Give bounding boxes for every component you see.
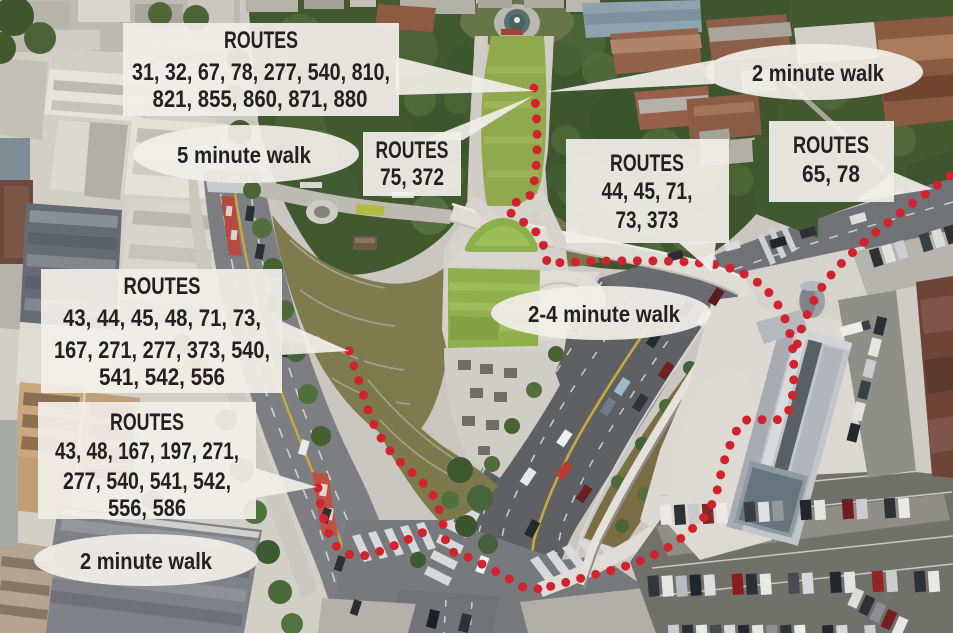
svg-text:73, 373: 73, 373	[616, 207, 679, 234]
svg-text:2-4 minute walk: 2-4 minute walk	[528, 301, 680, 327]
svg-text:ROUTES: ROUTES	[793, 132, 869, 159]
svg-text:556, 586: 556, 586	[108, 495, 186, 522]
svg-text:ROUTES: ROUTES	[376, 137, 449, 164]
svg-text:43, 48, 167, 197, 271,: 43, 48, 167, 197, 271,	[55, 438, 239, 465]
svg-text:ROUTES: ROUTES	[124, 273, 201, 300]
svg-text:ROUTES: ROUTES	[224, 27, 298, 54]
svg-text:2 minute walk: 2 minute walk	[752, 60, 884, 86]
svg-text:277, 540, 541, 542,: 277, 540, 541, 542,	[63, 468, 231, 495]
svg-text:167, 271, 277, 373, 540,: 167, 271, 277, 373, 540,	[54, 337, 270, 364]
svg-text:65, 78: 65, 78	[802, 161, 860, 188]
svg-text:ROUTES: ROUTES	[610, 150, 684, 177]
svg-text:2 minute walk: 2 minute walk	[80, 548, 212, 574]
svg-text:43, 44, 45, 48, 71, 73,: 43, 44, 45, 48, 71, 73,	[63, 305, 261, 332]
svg-text:5 minute walk: 5 minute walk	[177, 142, 311, 168]
svg-text:821, 855, 860, 871, 880: 821, 855, 860, 871, 880	[153, 86, 368, 113]
svg-text:44, 45, 71,: 44, 45, 71,	[602, 178, 693, 205]
svg-text:ROUTES: ROUTES	[110, 409, 184, 436]
svg-text:31, 32, 67, 78, 277, 540, 810,: 31, 32, 67, 78, 277, 540, 810,	[132, 59, 390, 86]
svg-text:541, 542, 556: 541, 542, 556	[99, 364, 225, 391]
svg-text:75, 372: 75, 372	[380, 164, 444, 191]
